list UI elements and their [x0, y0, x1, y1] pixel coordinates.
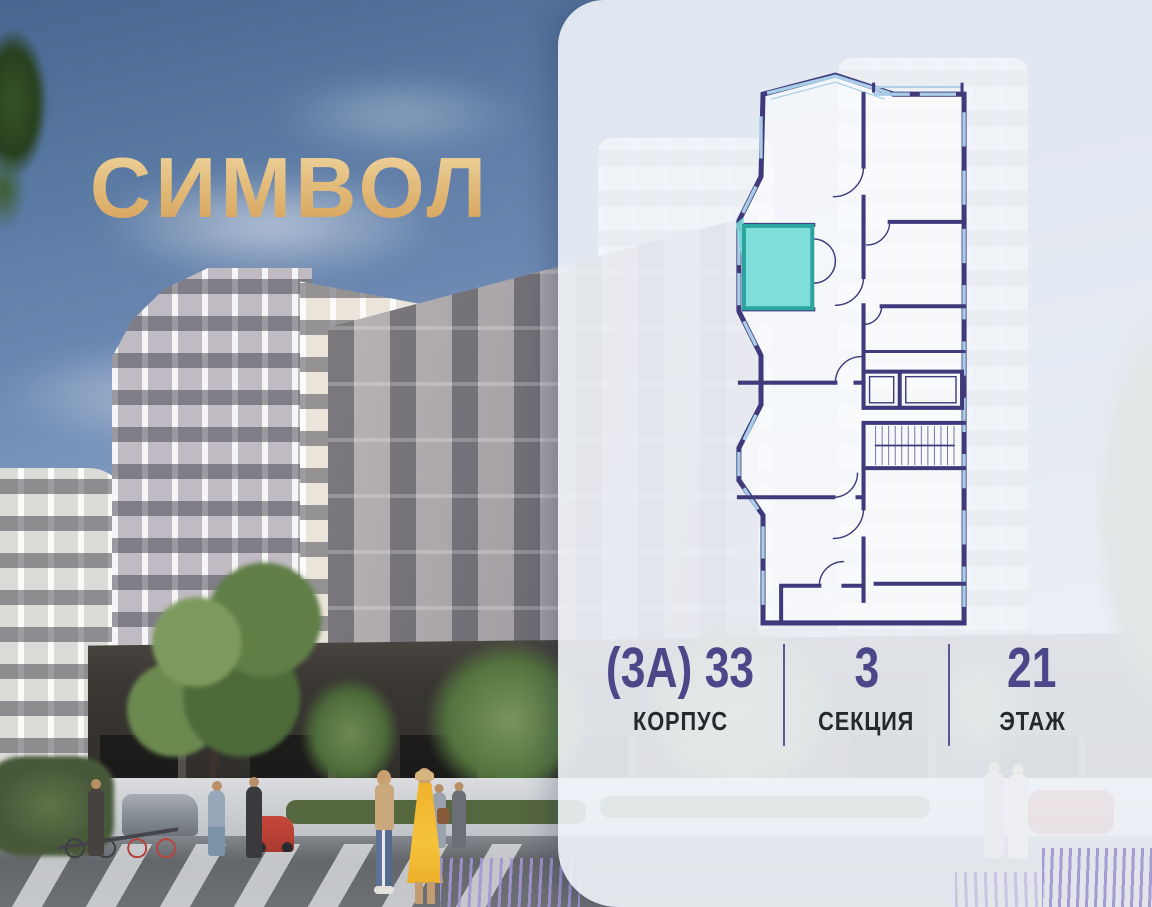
highlighted-unit[interactable] — [736, 217, 812, 308]
section-label: СЕКЦИЯ — [818, 706, 914, 737]
section-value: 3 — [854, 641, 879, 697]
building-label: КОРПУС — [633, 706, 728, 737]
floor-label: ЭТАЖ — [999, 706, 1065, 737]
pedestrian — [208, 790, 225, 856]
lavender-plants — [955, 872, 1045, 907]
building-value: (3А) 33 — [606, 641, 754, 697]
info-floor: 21 ЭТАЖ — [950, 641, 1114, 749]
lavender-plants — [440, 858, 580, 907]
info-building: (3А) 33 КОРПУС — [578, 641, 783, 749]
pedestrian — [452, 790, 466, 848]
floor-value: 21 — [1007, 641, 1056, 697]
listing-card: СИМВОЛ — [0, 0, 1152, 907]
pedestrian — [246, 786, 262, 858]
unit-info-bar: (3А) 33 КОРПУС 3 СЕКЦИЯ 21 ЭТАЖ — [578, 641, 1114, 749]
divider — [948, 644, 950, 746]
lavender-plants — [1042, 848, 1152, 907]
floor-plan[interactable] — [722, 58, 990, 636]
divider — [783, 644, 785, 746]
info-section: 3 СЕКЦИЯ — [785, 641, 949, 749]
brand-logo: СИМВОЛ — [88, 146, 492, 231]
pedestrian — [88, 788, 104, 856]
pedestrian-woman-jeans — [366, 770, 402, 906]
plan-silhouette — [739, 75, 964, 623]
bicycles — [58, 816, 178, 862]
